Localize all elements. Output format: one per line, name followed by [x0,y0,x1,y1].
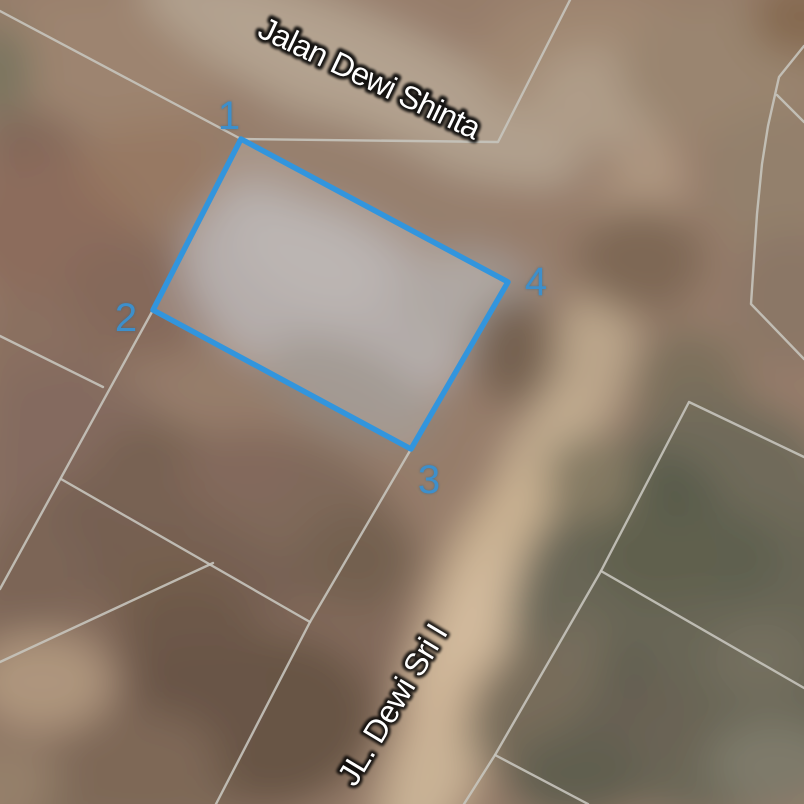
svg-text:3: 3 [418,458,440,502]
svg-text:2: 2 [115,296,137,340]
svg-text:1: 1 [218,94,240,138]
svg-text:4: 4 [525,260,547,304]
